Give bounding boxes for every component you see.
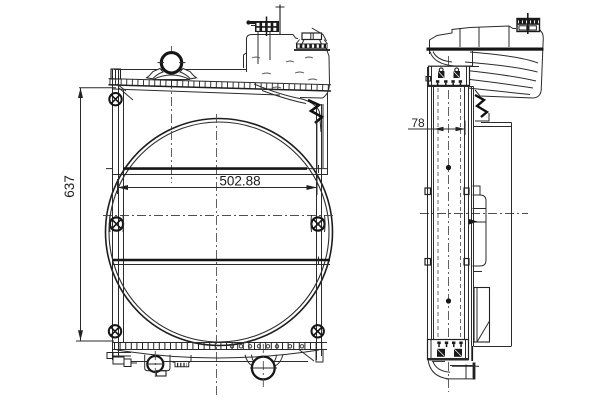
svg-text:78: 78	[411, 116, 425, 130]
svg-text:502.88: 502.88	[219, 174, 260, 189]
svg-text:637: 637	[62, 175, 77, 198]
